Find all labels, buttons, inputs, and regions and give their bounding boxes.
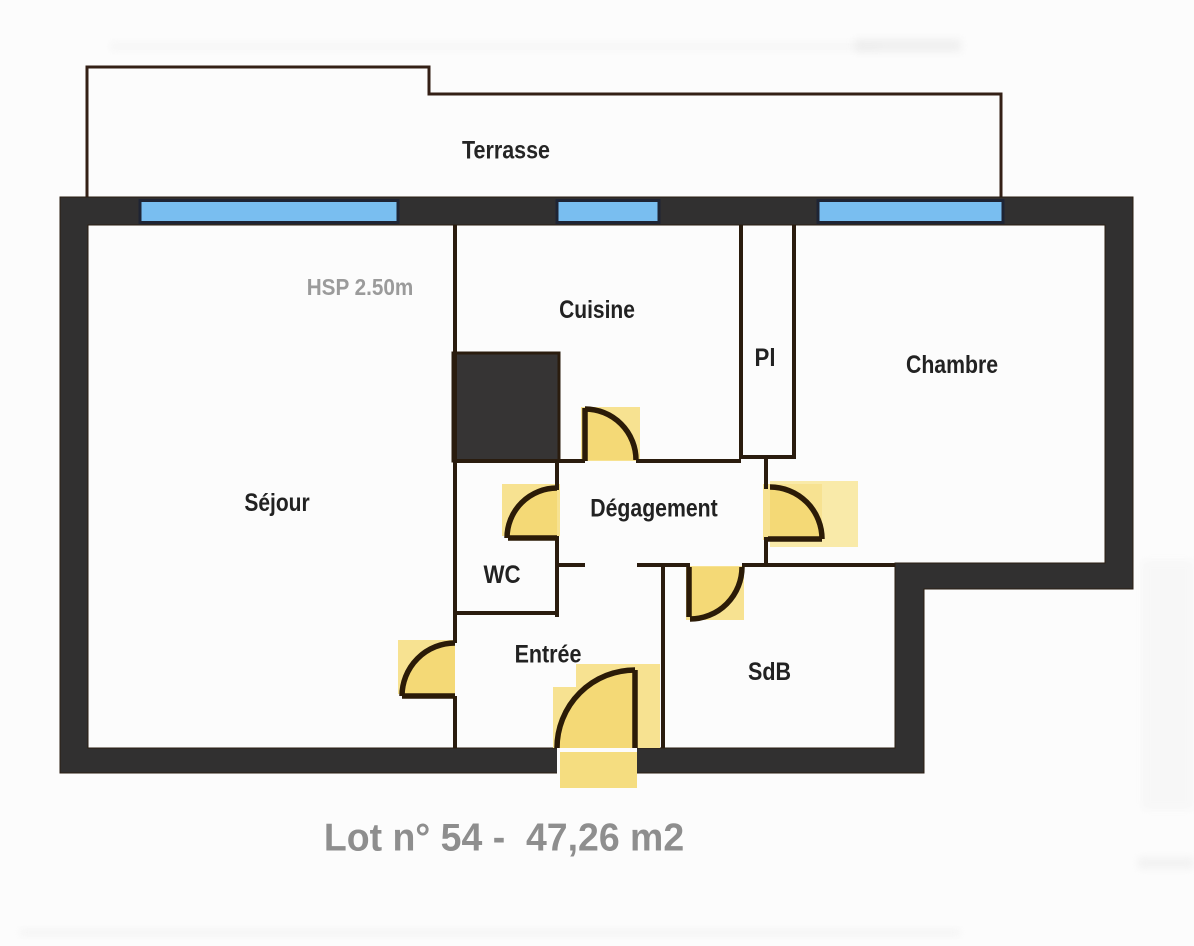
svg-text:Séjour: Séjour [244,488,309,516]
svg-text:Lot n° 54 - 47,26 m2: Lot n° 54 - 47,26 m2 [324,816,684,860]
svg-text:Chambre: Chambre [906,350,998,378]
svg-text:SdB: SdB [748,657,791,685]
svg-text:Entrée: Entrée [515,640,582,668]
svg-text:WC: WC [483,562,520,589]
svg-text:Cuisine: Cuisine [559,295,635,323]
svg-text:Dégagement: Dégagement [590,494,718,522]
svg-text:Pl: Pl [754,345,775,372]
svg-text:Terrasse: Terrasse [462,136,550,164]
svg-text:HSP 2.50m: HSP 2.50m [307,274,414,300]
